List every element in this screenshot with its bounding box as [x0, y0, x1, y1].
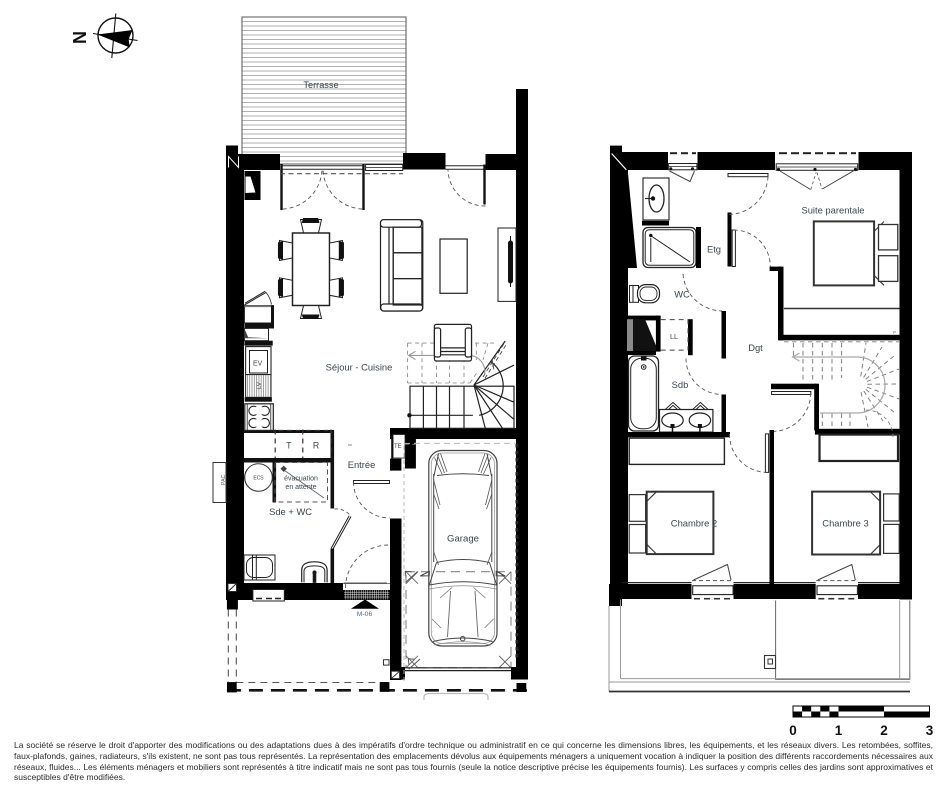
svg-text:Séjour - Cuisine: Séjour - Cuisine — [326, 362, 393, 373]
svg-text:Terrasse: Terrasse — [303, 80, 338, 90]
svg-text:2: 2 — [880, 723, 888, 738]
svg-text:R: R — [313, 441, 319, 451]
svg-text:Sdb: Sdb — [672, 379, 689, 390]
svg-text:LV: LV — [257, 382, 263, 389]
svg-text:M-06: M-06 — [357, 611, 373, 618]
svg-text:3: 3 — [926, 723, 934, 738]
svg-text:TE: TE — [394, 444, 402, 450]
svg-text:0: 0 — [789, 723, 797, 738]
svg-text:P: P — [893, 330, 896, 335]
svg-text:EV: EV — [253, 361, 263, 368]
svg-text:Sde + WC: Sde + WC — [269, 506, 312, 517]
svg-text:T: T — [286, 441, 292, 451]
svg-text:Chambre 2: Chambre 2 — [671, 518, 717, 529]
svg-text:PAC: PAC — [221, 474, 227, 485]
svg-text:Etg: Etg — [707, 244, 721, 255]
svg-text:Garage: Garage — [447, 534, 479, 545]
svg-text:N: N — [70, 31, 90, 44]
svg-text:LL: LL — [670, 332, 678, 341]
svg-text:Suite parentale: Suite parentale — [801, 205, 864, 216]
svg-text:Entrée: Entrée — [348, 459, 376, 470]
svg-text:1: 1 — [835, 723, 843, 738]
svg-text:en attente: en attente — [285, 484, 316, 491]
svg-text:Chambre 3: Chambre 3 — [822, 518, 868, 529]
svg-text:Dgt: Dgt — [748, 342, 763, 353]
svg-text:ECS: ECS — [253, 476, 264, 482]
svg-text:évacuation: évacuation — [284, 476, 318, 483]
